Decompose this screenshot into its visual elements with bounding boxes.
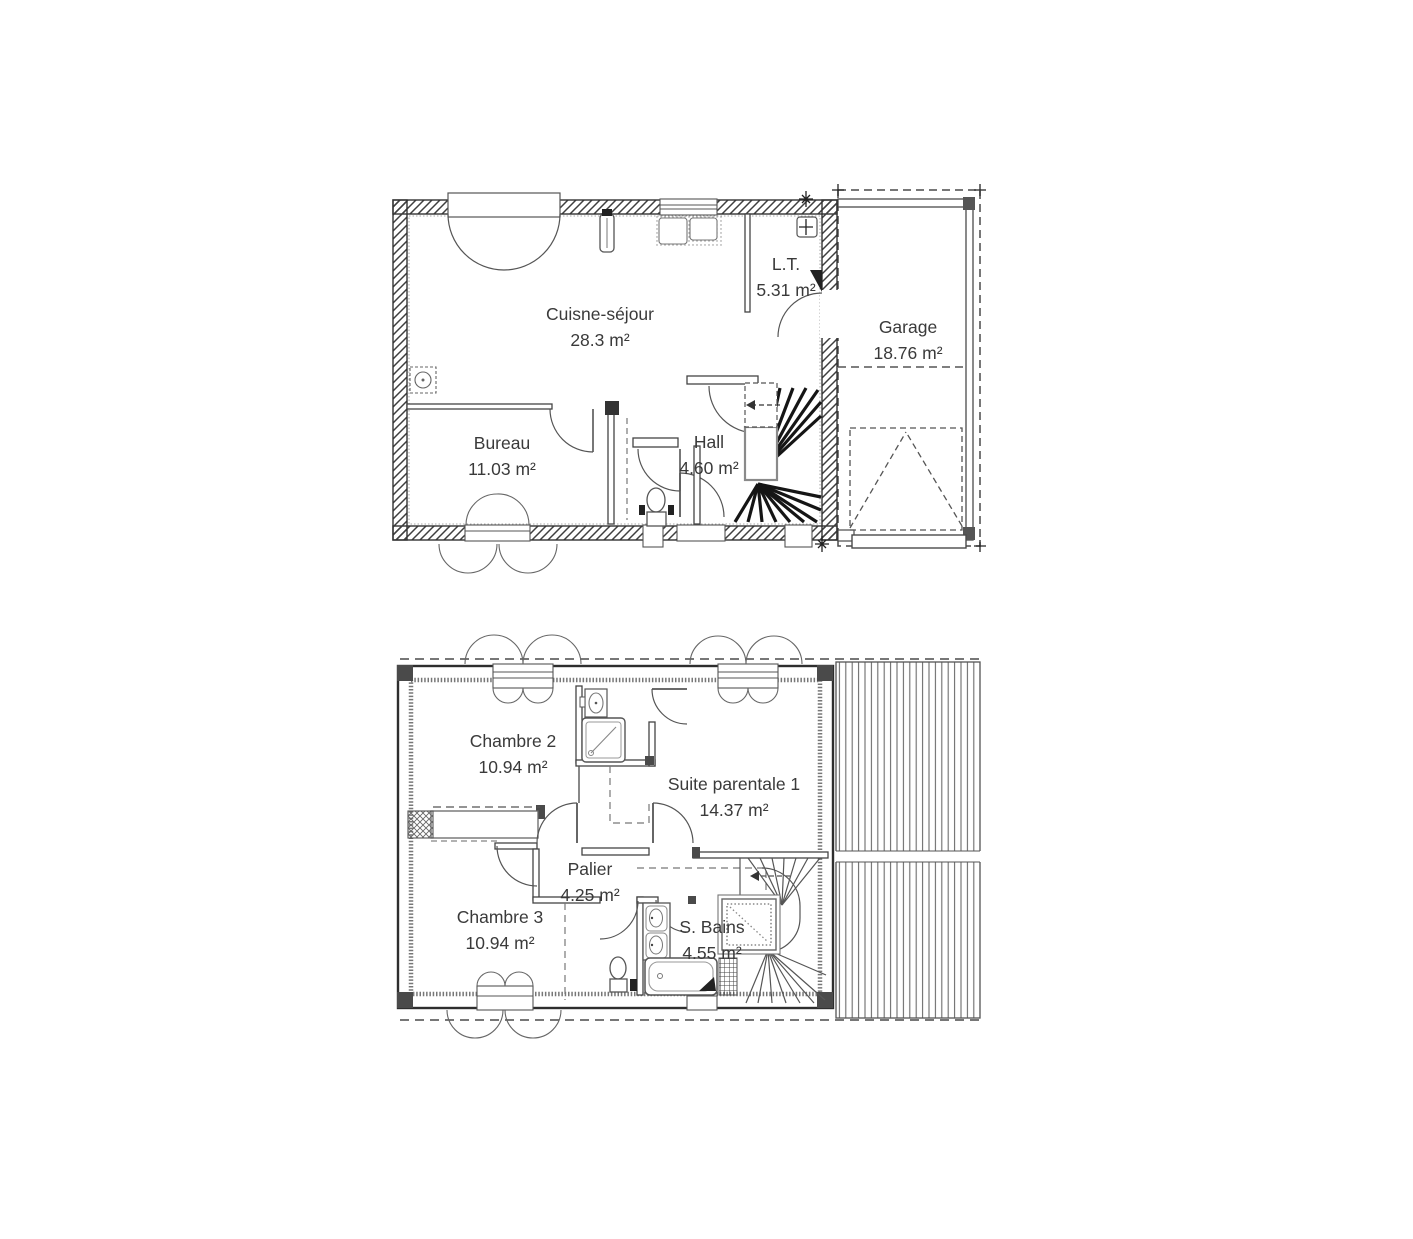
staircase (735, 383, 821, 522)
room-label-garage: Garage 18.76 m² (873, 314, 942, 366)
stair-window (785, 525, 812, 547)
kitchen-window (660, 199, 717, 215)
first-floor-plan (397, 635, 982, 1038)
double-sink-vanity (643, 903, 670, 960)
room-label-sbains: S. Bains 4.55 m² (679, 914, 744, 966)
floor-plan-drawing (0, 0, 1413, 1239)
entrance-door (677, 473, 725, 541)
sink-icon (580, 689, 607, 717)
french-door (448, 193, 560, 270)
stair-direction-arrow-first (750, 871, 759, 881)
room-label-hall: Hall 4.60 m² (679, 429, 738, 481)
room-label-palier: Palier 4.25 m² (560, 856, 619, 908)
boiler-icon (410, 367, 436, 393)
garage-access-opening (820, 290, 839, 338)
shower-icon (582, 718, 625, 762)
room-label-suite-parentale: Suite parentale 1 14.37 m² (668, 771, 800, 823)
floor-plan-sheet: Cuisne-séjour 28.3 m² L.T. 5.31 m² Garag… (0, 0, 1413, 1239)
toilet-icon (639, 488, 674, 526)
closet (408, 807, 540, 841)
garage-roof (835, 662, 981, 1018)
wc-window (643, 525, 663, 547)
room-label-bureau: Bureau 11.03 m² (468, 430, 536, 482)
toilet-first-icon (610, 957, 637, 992)
room-label-chambre3: Chambre 3 10.94 m² (457, 904, 544, 956)
duct-icon (408, 811, 433, 838)
garage-door-swing (850, 428, 962, 530)
room-label-lt: L.T. 5.31 m² (756, 251, 815, 303)
room-label-cuisine-sejour: Cuisne-séjour 28.3 m² (546, 301, 654, 353)
kitchen-sink (655, 216, 722, 248)
wall-post (605, 401, 619, 415)
garage-door (852, 535, 966, 548)
room-label-chambre2: Chambre 2 10.94 m² (470, 728, 557, 780)
radiator (600, 209, 614, 252)
garage (838, 190, 980, 548)
ground-floor-plan (393, 184, 986, 573)
